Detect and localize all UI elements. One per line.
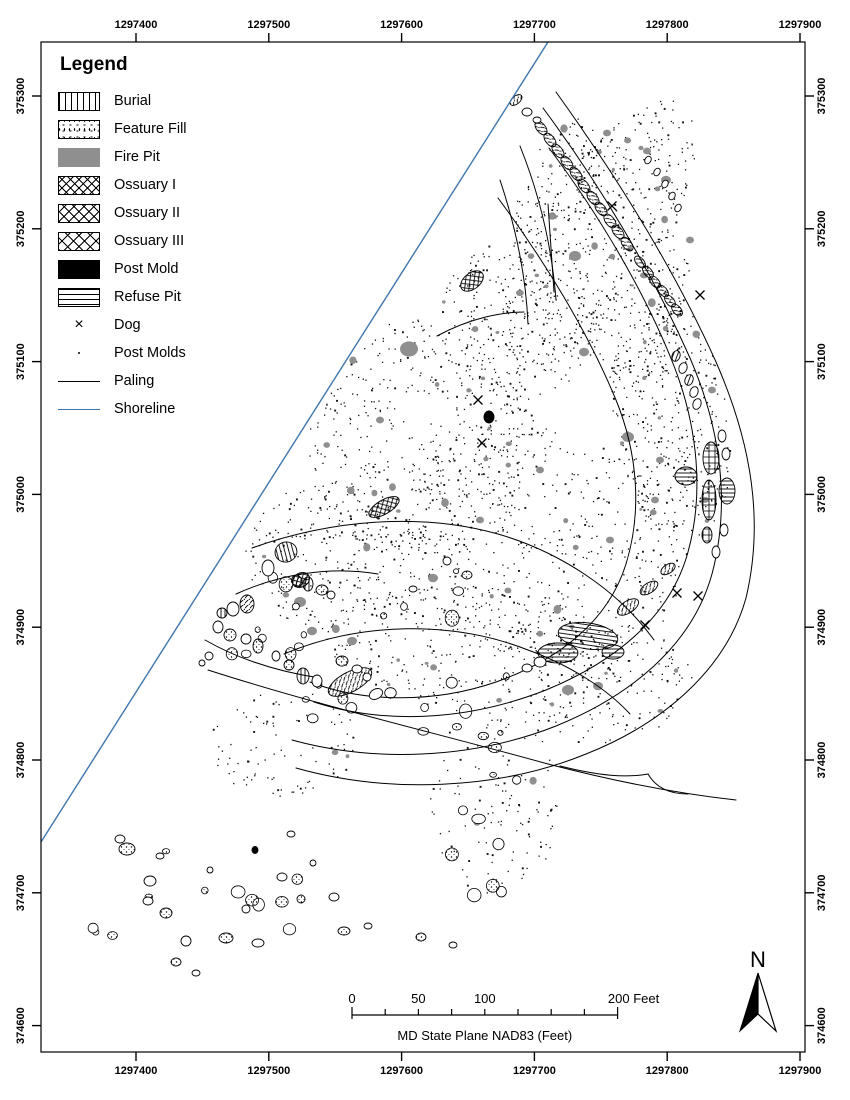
plain-feature — [272, 651, 280, 661]
plain-feature — [677, 361, 688, 374]
x-tick-label: 1297500 — [247, 19, 290, 31]
legend-item-label: Refuse Pit — [114, 289, 181, 305]
legend-item-label: Post Molds — [114, 345, 186, 361]
y-tick-label: 375000 — [15, 476, 27, 513]
plain-feature — [718, 430, 726, 442]
diag-feature — [240, 595, 254, 613]
stipple-feature — [160, 908, 172, 918]
y-tick-label: 375200 — [15, 210, 27, 247]
dog-swatch: × — [58, 315, 100, 335]
legend-item-feature-fill: Feature Fill — [58, 115, 187, 143]
plain-feature — [364, 923, 372, 929]
plain-feature — [712, 546, 720, 558]
legend-item-label: Fire Pit — [114, 149, 160, 165]
fire-pit-blobs — [262, 124, 716, 825]
x-tick-label: 1297900 — [779, 1065, 822, 1077]
stipple-feature — [171, 958, 181, 966]
burial-swatch — [58, 92, 100, 111]
shoreline-swatch — [58, 399, 100, 419]
dog-x-icon: × — [74, 317, 83, 333]
plain-feature — [242, 905, 250, 913]
vert-feature — [217, 608, 227, 618]
ossuary-ii-swatch — [58, 204, 100, 223]
legend-item-label: Burial — [114, 93, 151, 109]
north-arrow-label: N — [750, 947, 766, 972]
black-feature — [252, 847, 258, 854]
site-features — [115, 92, 735, 976]
refuse-pit-swatch — [58, 288, 100, 307]
plain-feature — [181, 936, 191, 946]
plain-feature — [213, 621, 223, 633]
stipple-feature — [219, 933, 233, 943]
plain-feature — [312, 675, 322, 687]
stipple-feature — [338, 927, 350, 935]
plain-feature — [156, 853, 164, 859]
stipple-feature — [462, 571, 472, 579]
plain-feature — [691, 397, 702, 410]
x-tick-label: 1297600 — [380, 19, 423, 31]
x-tick-label: 1297700 — [513, 1065, 556, 1077]
y-tick-label: 375100 — [15, 343, 27, 380]
plain-feature — [144, 876, 156, 886]
plain-feature — [534, 657, 546, 667]
plain-feature — [533, 117, 541, 123]
x-tick-label: 1297500 — [247, 1065, 290, 1077]
plain-feature — [443, 557, 451, 565]
legend-item-fire-pit: Fire Pit — [58, 143, 187, 171]
scale-bar-caption: MD State Plane NAD83 (Feet) — [397, 1028, 572, 1043]
plain-feature — [205, 652, 213, 660]
plain-feature — [522, 108, 532, 116]
scale-bar-label: 100 — [474, 991, 496, 1006]
plain-feature — [327, 591, 335, 599]
y-tick-label: 375000 — [816, 476, 828, 513]
vert-feature — [273, 539, 299, 564]
plain-feature — [409, 586, 417, 592]
grid-feature — [703, 442, 719, 474]
plain-feature — [192, 970, 200, 976]
page: { "page": {"width": 850, "height": 1100,… — [0, 0, 850, 1100]
paling-line-icon — [58, 381, 100, 382]
legend-item-post-molds: Post Molds — [58, 339, 187, 367]
ossuary-i-swatch — [58, 176, 100, 195]
plain-feature — [252, 939, 264, 947]
y-tick-label: 374600 — [816, 1007, 828, 1044]
legend-item-paling: Paling — [58, 367, 187, 395]
plain-feature — [652, 167, 661, 177]
scale-bar-label: 200 Feet — [608, 991, 660, 1006]
legend-item-label: Ossuary III — [114, 233, 184, 249]
y-tick-label: 375300 — [816, 78, 828, 115]
north-arrow: N — [740, 947, 776, 1031]
plain-feature — [143, 897, 153, 905]
x-tick-label: 1297700 — [513, 19, 556, 31]
legend-item-ossuary-ii: Ossuary II — [58, 199, 187, 227]
stipple-feature — [416, 933, 426, 941]
horiz-feature — [719, 478, 735, 504]
plain-feature — [287, 831, 295, 837]
y-tick-label: 374800 — [15, 742, 27, 779]
post-molds-swatch — [58, 343, 100, 363]
legend-item-label: Post Mold — [114, 261, 178, 277]
post-mold-swatch — [58, 260, 100, 279]
plain-feature — [207, 867, 213, 873]
scale-bar: 050100200 FeetMD State Plane NAD83 (Feet… — [348, 991, 659, 1043]
grid-feature — [702, 480, 716, 520]
plain-feature — [363, 673, 371, 681]
stipple-feature — [224, 629, 236, 641]
plain-feature — [262, 560, 274, 576]
legend-item-shoreline: Shoreline — [58, 395, 187, 423]
legend-item-label: Shoreline — [114, 401, 175, 417]
legend-rows: BurialFeature FillFire PitOssuary IOssua… — [58, 87, 187, 423]
y-tick-label: 374600 — [15, 1007, 27, 1044]
plain-feature — [227, 602, 239, 616]
plain-feature — [277, 873, 287, 881]
y-tick-label: 374700 — [15, 874, 27, 911]
scale-bar-label: 0 — [348, 991, 355, 1006]
y-tick-label: 374900 — [15, 609, 27, 646]
stipple-feature — [316, 585, 328, 595]
x-tick-label: 1297600 — [380, 1065, 423, 1077]
fire-pit-swatch — [58, 148, 100, 167]
plain-feature — [310, 860, 316, 866]
legend-item-label: Ossuary II — [114, 205, 180, 221]
x-tick-label: 1297800 — [646, 1065, 689, 1077]
post-mold-dot-icon — [78, 352, 80, 354]
legend-item-refuse-pit: Refuse Pit — [58, 283, 187, 311]
diag-feature — [638, 578, 660, 597]
legend-item-burial: Burial — [58, 87, 187, 115]
x-tick-label: 1297800 — [646, 19, 689, 31]
plain-feature — [449, 942, 457, 948]
feature-fill-swatch — [58, 120, 100, 139]
y-tick-label: 374800 — [816, 742, 828, 779]
vert-feature — [297, 668, 309, 684]
y-tick-label: 374900 — [816, 609, 828, 646]
plain-feature — [199, 660, 205, 666]
stipple-feature — [336, 656, 348, 666]
plain-feature — [688, 385, 699, 398]
stipple-feature — [297, 895, 305, 903]
plain-feature — [720, 524, 728, 536]
x-tick-label: 1297400 — [115, 1065, 158, 1077]
cross-feature — [366, 492, 402, 521]
x-tick-label: 1297400 — [115, 19, 158, 31]
stipple-feature — [253, 639, 263, 653]
horiz-feature — [675, 467, 697, 485]
y-tick-label: 374700 — [816, 874, 828, 911]
scale-bar-label: 50 — [411, 991, 425, 1006]
y-tick-label: 375300 — [15, 78, 27, 115]
legend-item-label: Ossuary I — [114, 177, 176, 193]
legend-title: Legend — [60, 54, 187, 76]
grid-feature — [702, 527, 712, 543]
y-tick-label: 375100 — [816, 343, 828, 380]
diag-feature — [659, 561, 677, 577]
plain-feature — [673, 203, 682, 213]
black-feature — [484, 411, 494, 423]
legend: Legend BurialFeature FillFire PitOssuary… — [56, 52, 193, 425]
legend-item-post-mold: Post Mold — [58, 255, 187, 283]
plain-feature — [329, 893, 339, 901]
legend-item-label: Paling — [114, 373, 154, 389]
plain-feature — [241, 634, 251, 644]
plain-feature — [352, 665, 362, 673]
stipple-feature — [119, 843, 135, 855]
plain-feature — [522, 664, 532, 672]
legend-item-ossuary-iii: Ossuary III — [58, 227, 187, 255]
plain-feature — [643, 155, 652, 165]
y-tick-label: 375200 — [816, 210, 828, 247]
vert-feature — [303, 577, 313, 591]
legend-item-ossuary-i: Ossuary I — [58, 171, 187, 199]
legend-item-dog: ×Dog — [58, 311, 187, 339]
vert-feature — [683, 373, 694, 386]
plain-feature — [722, 448, 730, 460]
paling-swatch — [58, 371, 100, 391]
ossuary-iii-swatch — [58, 232, 100, 251]
x-tick-label: 1297900 — [779, 19, 822, 31]
horiz-feature — [602, 645, 624, 659]
stipple-feature — [284, 660, 294, 670]
shoreline-line-icon — [58, 409, 100, 410]
legend-item-label: Dog — [114, 317, 141, 333]
plain-feature — [115, 835, 125, 843]
legend-item-label: Feature Fill — [114, 121, 187, 137]
plain-feature — [367, 686, 384, 701]
